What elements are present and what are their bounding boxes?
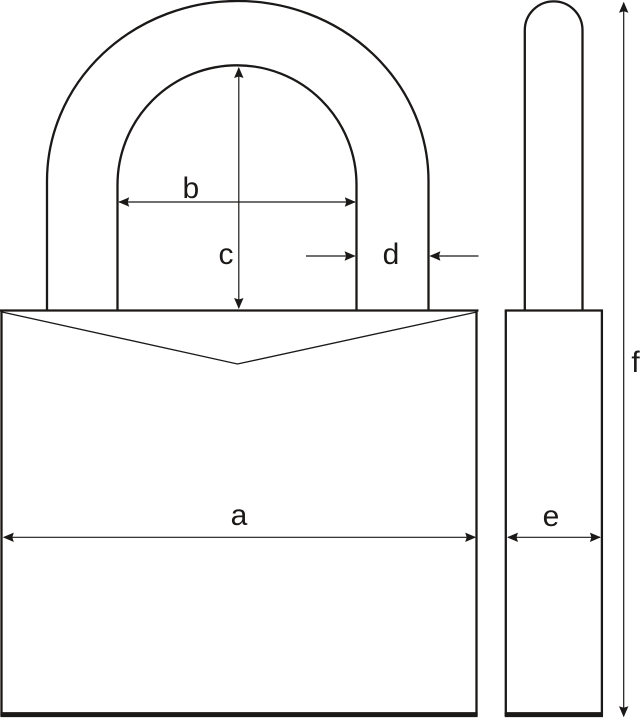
svg-text:f: f	[631, 346, 640, 379]
svg-text:e: e	[543, 500, 560, 533]
svg-text:d: d	[383, 238, 400, 271]
svg-text:c: c	[219, 238, 234, 271]
svg-text:b: b	[182, 172, 199, 205]
svg-text:a: a	[231, 499, 248, 532]
